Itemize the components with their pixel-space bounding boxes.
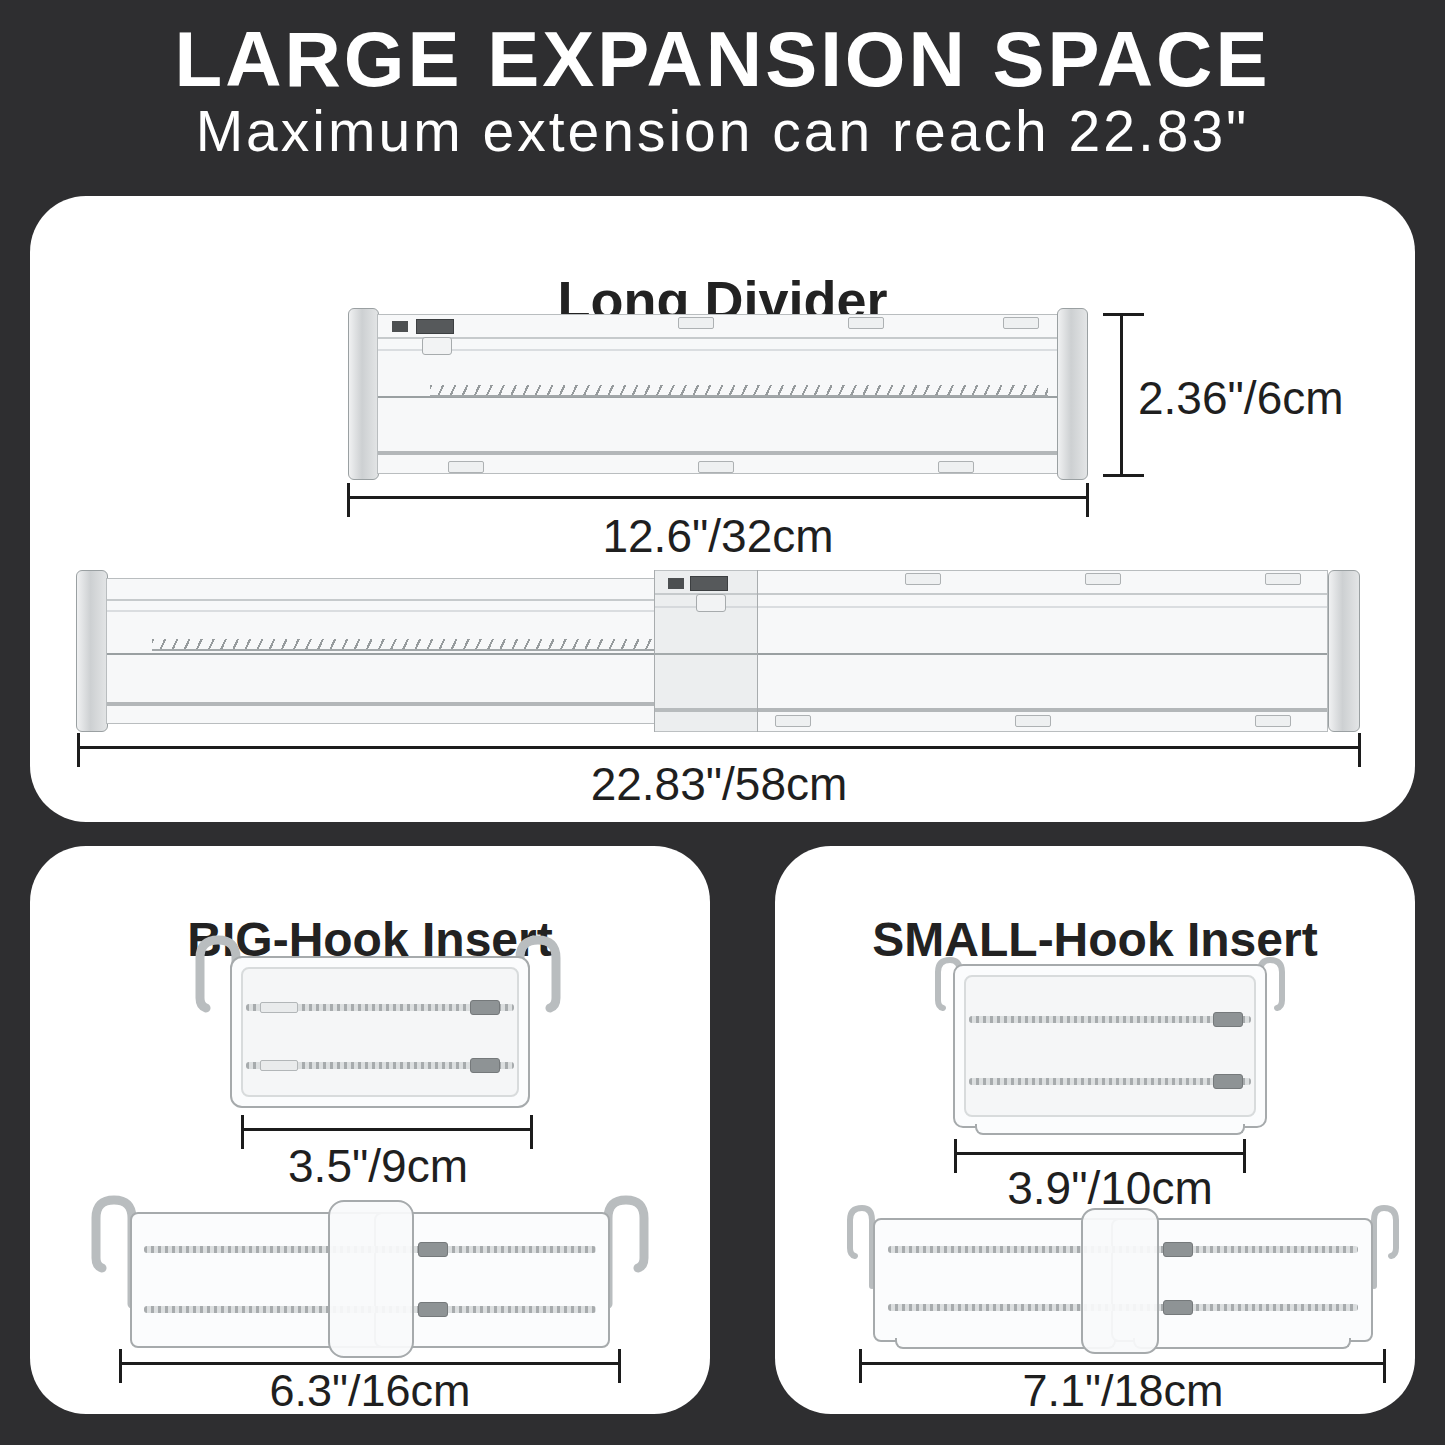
mounting-clip — [905, 573, 941, 585]
long-divider-retracted-illustration — [348, 308, 1088, 480]
big-hook-panel: BIG-Hook Insert 3.5"/9cm — [30, 846, 710, 1414]
rod-clip — [418, 1242, 448, 1257]
end-cap-right — [1328, 570, 1360, 732]
page-subtitle: Maximum extension can reach 22.83" — [0, 100, 1445, 162]
divider-body — [377, 314, 1059, 474]
small-hook-retracted-illustration — [925, 950, 1295, 1142]
ratchet-track — [430, 385, 1048, 397]
big-hook-extended-illustration — [86, 1198, 654, 1360]
rod-tab — [260, 1060, 298, 1071]
end-cap-left — [348, 308, 379, 480]
extended-length-dimension-line — [78, 746, 1360, 749]
small-hook-retracted-label: 3.9"/10cm — [925, 1164, 1295, 1212]
insert-body — [230, 956, 530, 1108]
slide-connector — [1081, 1208, 1159, 1354]
mounting-clip — [698, 461, 734, 473]
extended-length-label: 22.83"/58cm — [78, 760, 1360, 808]
lock-latch — [392, 321, 408, 332]
rod-clip — [1163, 1300, 1193, 1315]
lock-latch — [696, 594, 726, 612]
ratchet-track — [152, 639, 712, 651]
rod-clip — [418, 1302, 448, 1317]
mounting-clip — [448, 461, 484, 473]
rod-clip — [470, 1000, 500, 1015]
tension-rod — [969, 1016, 1251, 1023]
end-cap-left — [76, 570, 108, 732]
rod-clip — [470, 1058, 500, 1073]
small-hook-extended-illustration — [843, 1206, 1403, 1358]
rod-clip — [1213, 1074, 1243, 1089]
big-hook-retracted-label: 3.5"/9cm — [188, 1142, 568, 1190]
mounting-clip — [1003, 317, 1039, 329]
insert-inner-panel — [964, 975, 1256, 1117]
mounting-clip — [775, 715, 811, 727]
long-divider-panel: Long Divider 2.36"/6cm 12.6"/32cm — [30, 196, 1415, 822]
retracted-length-label: 12.6"/32cm — [348, 512, 1088, 560]
mounting-clip — [678, 317, 714, 329]
height-dimension-label: 2.36"/6cm — [1138, 374, 1438, 422]
mounting-clip — [938, 461, 974, 473]
lock-latch — [416, 319, 454, 334]
small-hook-retracted-dimension-line — [955, 1152, 1245, 1155]
rod-clip — [1213, 1012, 1243, 1027]
mounting-clip — [1015, 715, 1051, 727]
big-hook-extended-label: 6.3"/16cm — [86, 1368, 654, 1414]
insert-inner-panel — [241, 967, 519, 1097]
big-hook-retracted-dimension-line — [242, 1128, 532, 1131]
rod-tab — [260, 1002, 298, 1013]
small-hook-panel: SMALL-Hook Insert 3.9"/10cm — [775, 846, 1415, 1414]
mounting-clip — [1265, 573, 1301, 585]
mounting-clip — [1255, 715, 1291, 727]
slide-connector — [328, 1200, 414, 1358]
retracted-length-dimension-line — [348, 496, 1088, 499]
lock-latch — [422, 337, 452, 355]
tension-rod — [969, 1078, 1251, 1085]
end-cap-right — [1057, 308, 1088, 480]
big-hook-retracted-illustration — [188, 932, 568, 1112]
rod-clip — [1163, 1242, 1193, 1257]
page-title: LARGE EXPANSION SPACE — [0, 18, 1445, 100]
lock-latch — [690, 576, 728, 591]
small-hook-extended-label: 7.1"/18cm — [843, 1368, 1403, 1414]
long-divider-extended-illustration — [76, 570, 1360, 732]
mounting-clip — [1085, 573, 1121, 585]
lock-latch — [668, 578, 684, 589]
product-infographic: LARGE EXPANSION SPACE Maximum extension … — [0, 0, 1445, 1445]
insert-body — [953, 964, 1267, 1128]
height-dimension-line — [1120, 314, 1123, 476]
mounting-clip — [848, 317, 884, 329]
